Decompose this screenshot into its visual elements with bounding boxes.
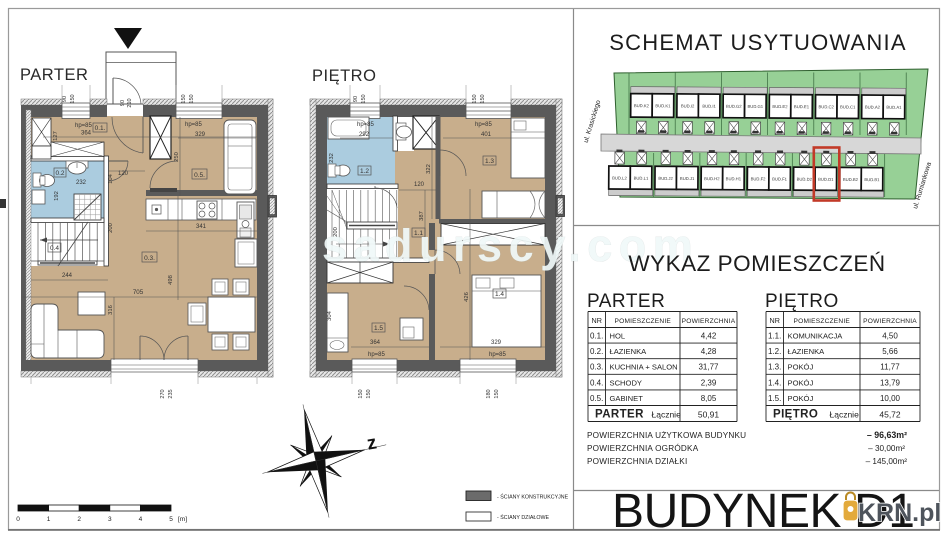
svg-text:HOL: HOL: [610, 332, 626, 341]
svg-text:150: 150: [361, 94, 367, 103]
svg-text:0.1.: 0.1.: [95, 125, 106, 132]
svg-text:0.4: 0.4: [50, 245, 59, 252]
svg-text:232: 232: [329, 153, 335, 163]
svg-text:1.2: 1.2: [360, 168, 369, 175]
svg-text:POKÓJ: POKÓJ: [788, 394, 814, 403]
svg-text:5: 5: [169, 516, 173, 523]
svg-text:235: 235: [168, 389, 174, 398]
svg-text:POWIERZCHNIA: POWIERZCHNIA: [863, 318, 917, 325]
svg-text:4,28: 4,28: [701, 347, 717, 356]
svg-text:329: 329: [491, 340, 502, 346]
svg-text:hp=85: hp=85: [75, 123, 93, 129]
svg-text:NR: NR: [770, 316, 780, 325]
svg-text:45,72: 45,72: [879, 410, 901, 420]
svg-text:10,00: 10,00: [880, 394, 901, 403]
svg-text:426: 426: [464, 292, 470, 302]
svg-text:BUD.L1: BUD.L1: [634, 176, 649, 181]
svg-text:PARTER: PARTER: [595, 409, 644, 421]
svg-text:BUD.J2: BUD.J2: [658, 176, 673, 181]
svg-text:13,79: 13,79: [880, 378, 901, 387]
svg-text:705: 705: [133, 289, 144, 296]
svg-text:192: 192: [54, 191, 60, 201]
svg-text:BUD.K2: BUD.K2: [634, 103, 650, 108]
svg-text:364: 364: [370, 340, 381, 346]
svg-text:BUD.E2: BUD.E2: [772, 104, 788, 109]
svg-text:hp=85: hp=85: [475, 122, 493, 128]
svg-text:BUD.C1: BUD.C1: [840, 104, 856, 109]
svg-text:– 145,00m²: – 145,00m²: [866, 457, 908, 466]
svg-text:- ŚCIANY KONSTRUKCYJNE: - ŚCIANY KONSTRUKCYJNE: [497, 493, 569, 501]
svg-text:5,66: 5,66: [882, 347, 898, 356]
svg-text:364: 364: [81, 131, 92, 137]
svg-text:BUD.H1: BUD.H1: [726, 176, 742, 181]
svg-text:1.5: 1.5: [374, 325, 383, 332]
svg-text:PARTER: PARTER: [587, 291, 665, 312]
svg-text:1.4: 1.4: [495, 291, 504, 298]
svg-text:270: 270: [160, 389, 166, 398]
svg-text:150: 150: [480, 94, 486, 103]
svg-text:PIĘTRO: PIĘTRO: [773, 409, 818, 421]
svg-text:401: 401: [481, 132, 492, 138]
svg-text:BUD.J1: BUD.J1: [680, 176, 695, 181]
svg-text:POWIERZCHNIA DZIAŁKI: POWIERZCHNIA DZIAŁKI: [587, 457, 687, 466]
svg-text:KRN.pl: KRN.pl: [858, 499, 941, 527]
svg-text:0.1.: 0.1.: [590, 332, 603, 341]
svg-text:BUD.H2: BUD.H2: [704, 176, 720, 181]
svg-text:150: 150: [358, 389, 364, 398]
svg-text:KOMUNIKACJA: KOMUNIKACJA: [788, 332, 844, 341]
svg-text:150: 150: [70, 94, 76, 103]
svg-text:BUD.K1: BUD.K1: [655, 103, 671, 108]
svg-text:150: 150: [189, 94, 195, 103]
svg-text:0.3.: 0.3.: [144, 255, 155, 262]
svg-text:Łącznie: Łącznie: [652, 410, 682, 420]
svg-text:200: 200: [108, 223, 114, 233]
svg-text:POKÓJ: POKÓJ: [788, 378, 814, 387]
svg-text:232: 232: [76, 180, 87, 186]
svg-text:POKÓJ: POKÓJ: [788, 363, 814, 372]
svg-text:[m]: [m]: [178, 516, 187, 523]
svg-text:120: 120: [118, 171, 129, 177]
svg-text:BUD.F2: BUD.F2: [751, 176, 767, 181]
svg-text:ŁAZIENKA: ŁAZIENKA: [788, 347, 826, 356]
svg-text:BUD.A1: BUD.A1: [886, 105, 902, 110]
svg-text:PARTER: PARTER: [20, 66, 88, 84]
svg-text:11,77: 11,77: [880, 363, 900, 372]
svg-text:90: 90: [353, 96, 359, 102]
svg-text:GABINET: GABINET: [610, 394, 644, 403]
svg-text:POMIESZCZENIE: POMIESZCZENIE: [615, 318, 672, 325]
svg-text:1.1.: 1.1.: [768, 332, 781, 341]
svg-text:Łącznie: Łącznie: [830, 410, 860, 420]
svg-text:- ŚCIANY DZIAŁOWE: - ŚCIANY DZIAŁOWE: [497, 513, 549, 521]
svg-text:0.5.: 0.5.: [590, 394, 603, 403]
svg-text:POWIERZCHNIA: POWIERZCHNIA: [682, 318, 736, 325]
svg-text:31,77: 31,77: [698, 363, 719, 372]
svg-text:127: 127: [53, 131, 59, 141]
svg-text:90: 90: [120, 100, 126, 106]
svg-text:0: 0: [16, 516, 20, 523]
svg-text:BUD.B2: BUD.B2: [843, 177, 859, 182]
svg-text:POWIERZCHNIA OGRÓDKA: POWIERZCHNIA OGRÓDKA: [587, 443, 699, 453]
svg-text:SCHEMAT USYTUOWANIA: SCHEMAT USYTUOWANIA: [609, 30, 906, 55]
svg-text:180: 180: [486, 389, 492, 398]
svg-text:329: 329: [195, 132, 206, 138]
svg-text:BUD.G2: BUD.G2: [726, 104, 742, 109]
svg-text:ŁAZIENKA: ŁAZIENKA: [610, 347, 648, 356]
svg-text:150: 150: [472, 94, 478, 103]
svg-text:– 30,00m²: – 30,00m²: [868, 444, 905, 453]
svg-text:304: 304: [327, 310, 333, 320]
svg-text:8,05: 8,05: [701, 394, 717, 403]
svg-text:0.2.: 0.2.: [590, 347, 603, 356]
svg-text:KUCHNIA + SALON: KUCHNIA + SALON: [610, 363, 678, 372]
svg-text:322: 322: [426, 164, 432, 174]
svg-text:1.5.: 1.5.: [768, 394, 781, 403]
svg-text:BUD.A2: BUD.A2: [865, 105, 881, 110]
svg-text:90: 90: [62, 96, 68, 102]
svg-text:150: 150: [494, 389, 500, 398]
svg-text:341: 341: [196, 224, 207, 230]
svg-text:250: 250: [174, 152, 180, 162]
svg-text:1: 1: [47, 516, 51, 523]
svg-text:BUD.D2: BUD.D2: [797, 177, 813, 182]
svg-text:244: 244: [62, 273, 73, 279]
svg-text:PIĘTRO: PIĘTRO: [765, 291, 839, 312]
svg-text:PIĘTRO: PIĘTRO: [312, 67, 376, 85]
svg-text:0.5.: 0.5.: [194, 172, 205, 179]
svg-text:120: 120: [414, 182, 425, 188]
svg-text:1.3: 1.3: [485, 158, 494, 165]
svg-text:hp=85: hp=85: [357, 122, 375, 128]
svg-text:NR: NR: [592, 316, 602, 325]
svg-text:SCHODY: SCHODY: [610, 378, 643, 387]
svg-text:1.4.: 1.4.: [768, 378, 781, 387]
svg-text:4,50: 4,50: [882, 332, 898, 341]
svg-text:1.3.: 1.3.: [768, 363, 781, 372]
svg-text:POWIERZCHNIA UŻYTKOWA BUDYNK: POWIERZCHNIA UŻYTKOWA BUDYNKU: [587, 430, 746, 440]
svg-text:498: 498: [168, 275, 174, 285]
svg-text:4: 4: [139, 516, 143, 523]
svg-text:0.4.: 0.4.: [590, 378, 603, 387]
svg-text:0.3.: 0.3.: [590, 363, 603, 372]
svg-text:hp=85: hp=85: [368, 352, 386, 358]
svg-text:BUD.E1: BUD.E1: [794, 104, 810, 109]
svg-text:50,91: 50,91: [698, 410, 720, 420]
svg-text:BUD.F1: BUD.F1: [772, 176, 788, 181]
svg-text:hp=85: hp=85: [489, 352, 507, 358]
svg-text:BUD.B1: BUD.B1: [864, 177, 880, 182]
svg-text:2: 2: [77, 516, 81, 523]
svg-text:WYKAZ POMIESZCZEŃ: WYKAZ POMIESZCZEŃ: [628, 251, 885, 276]
svg-text:BUD.C2: BUD.C2: [819, 104, 835, 109]
svg-text:hp=85: hp=85: [185, 122, 203, 128]
svg-text:BUD.L2: BUD.L2: [612, 176, 627, 181]
svg-text:292: 292: [359, 132, 370, 138]
svg-text:4,42: 4,42: [701, 332, 717, 341]
svg-text:2,39: 2,39: [701, 378, 717, 387]
svg-text:3: 3: [108, 516, 112, 523]
svg-text:104: 104: [108, 173, 114, 183]
svg-text:316: 316: [108, 305, 114, 315]
svg-text:210: 210: [127, 98, 133, 107]
svg-text:1.2.: 1.2.: [768, 347, 781, 356]
svg-text:– 96,63m²: – 96,63m²: [867, 430, 907, 440]
svg-text:0.2: 0.2: [55, 170, 64, 177]
svg-text:BUD.D1: BUD.D1: [818, 177, 834, 182]
svg-text:POMIESZCZENIE: POMIESZCZENIE: [794, 318, 851, 325]
svg-text:BUD.G1: BUD.G1: [747, 104, 763, 109]
svg-text:150: 150: [181, 94, 187, 103]
svg-text:150: 150: [366, 389, 372, 398]
svg-text:BUD.I1: BUD.I1: [702, 104, 716, 109]
svg-text:BUD.I2: BUD.I2: [681, 103, 695, 108]
